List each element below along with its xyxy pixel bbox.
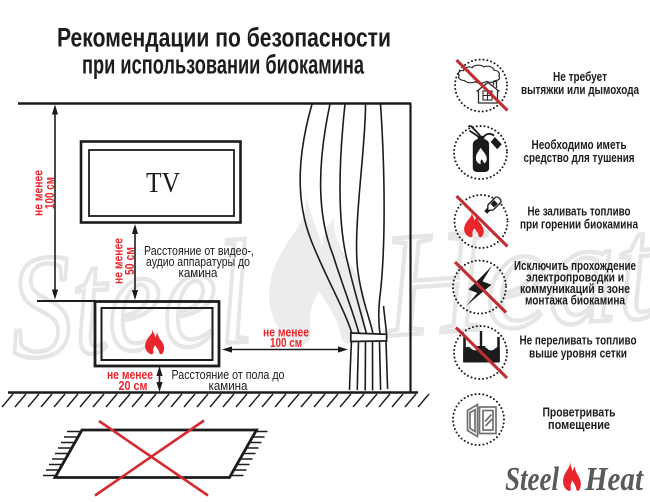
svg-text:100 см: 100 см bbox=[270, 336, 302, 350]
svg-text:TV: TV bbox=[146, 167, 180, 199]
svg-text:средство для тушения: средство для тушения bbox=[524, 151, 635, 165]
svg-text:при горении биокамина: при горении биокамина bbox=[520, 218, 639, 232]
svg-text:Необходимо иметь: Необходимо иметь bbox=[532, 138, 627, 152]
svg-text:Не переливать топливо: Не переливать топливо bbox=[520, 334, 637, 348]
svg-text:50 см: 50 см bbox=[123, 247, 137, 275]
svg-text:20 см: 20 см bbox=[119, 379, 148, 393]
svg-text:вытяжки или дымохода: вытяжки или дымохода bbox=[521, 83, 640, 97]
svg-text:Не заливать топливо: Не заливать топливо bbox=[528, 205, 631, 219]
svg-text:Рекомендации по безопасности: Рекомендации по безопасности bbox=[57, 23, 391, 53]
svg-text:при использовании биокамина: при использовании биокамина bbox=[82, 50, 365, 80]
svg-text:Heat: Heat bbox=[584, 461, 644, 498]
svg-text:камина: камина bbox=[209, 379, 248, 393]
svg-text:100 см: 100 см bbox=[43, 177, 57, 209]
svg-text:Не требует: Не требует bbox=[553, 70, 607, 84]
svg-text:камина: камина bbox=[179, 266, 218, 280]
svg-text:Steel: Steel bbox=[505, 461, 559, 498]
svg-text:помещение: помещение bbox=[548, 418, 610, 432]
svg-text:выше уровня сетки: выше уровня сетки bbox=[529, 347, 627, 361]
svg-text:монтажа биокамина: монтажа биокамина bbox=[525, 294, 626, 308]
